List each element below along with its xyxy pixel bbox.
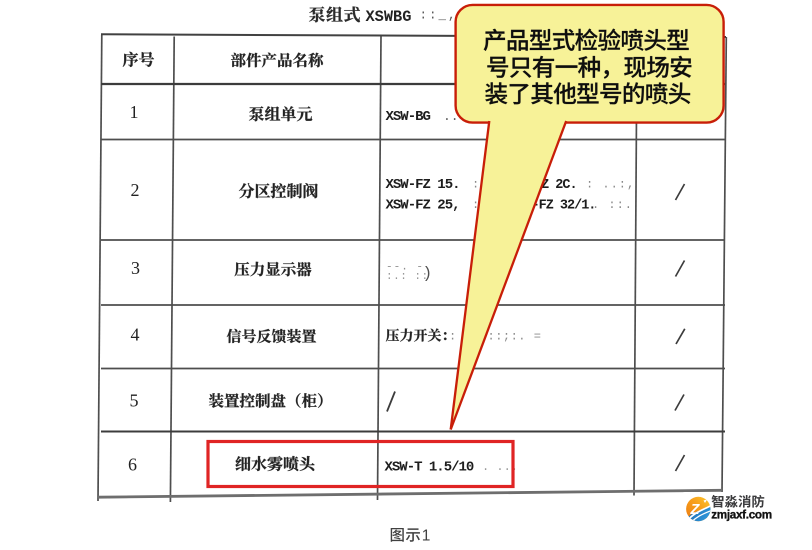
svg-text:XSW-BG: XSW-BG — [386, 109, 431, 125]
svg-text:4: 4 — [131, 324, 140, 344]
svg-text:3: 3 — [131, 258, 140, 278]
svg-text:Z: Z — [690, 502, 701, 518]
svg-text:: ..:,: : ..:, — [586, 178, 635, 192]
svg-text:1: 1 — [130, 102, 139, 122]
svg-text:zmjaxf.com: zmjaxf.com — [711, 508, 772, 521]
svg-text:XSW-T 1.5/10: XSW-T 1.5/10 — [385, 460, 474, 476]
svg-text:): ) — [423, 265, 433, 283]
svg-text:5: 5 — [130, 390, 139, 410]
svg-text:6: 6 — [128, 454, 137, 474]
svg-text:. ::.: . ::. — [592, 198, 633, 212]
svg-text:-FZ 32/1.: -FZ 32/1. — [532, 199, 596, 214]
svg-text:XSWBG: XSWBG — [366, 8, 412, 26]
svg-text:2: 2 — [131, 180, 140, 200]
svg-text:XSW-FZ 25,: XSW-FZ 25, — [386, 198, 460, 214]
svg-text:XSW-FZ 15.: XSW-FZ 15. — [386, 177, 460, 193]
svg-text:1: 1 — [422, 527, 431, 544]
